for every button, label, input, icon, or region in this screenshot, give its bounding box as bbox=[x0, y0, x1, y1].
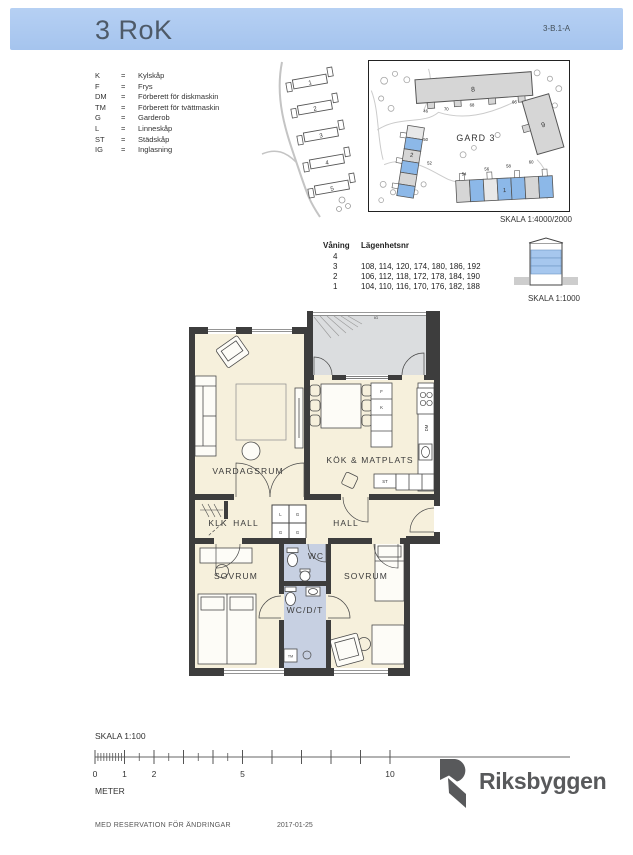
dining-table bbox=[321, 384, 361, 428]
floor-number: 1 bbox=[323, 282, 361, 292]
legend-eq: = bbox=[121, 82, 138, 93]
legend-row: DM=Förberett för diskmaskin bbox=[95, 92, 219, 103]
apartment-numbers: 108, 114, 120, 174, 180, 186, 192 bbox=[361, 262, 481, 272]
entrance-number: 70 bbox=[444, 106, 449, 111]
legend-abbr: G bbox=[95, 113, 121, 124]
legend-eq: = bbox=[121, 145, 138, 156]
building-row: 1 bbox=[284, 67, 334, 92]
tick-label: 1 bbox=[122, 769, 127, 779]
drawing-code: 3-B.1-A bbox=[543, 24, 570, 33]
legend-eq: = bbox=[121, 92, 138, 103]
fridge-label: K bbox=[380, 405, 383, 410]
legend-row: ST=Städskåp bbox=[95, 135, 219, 146]
header-band: 3 RoK 3-B.1-A bbox=[10, 8, 623, 50]
highlighted-floors bbox=[531, 250, 561, 274]
page-title: 3 RoK bbox=[95, 15, 173, 46]
legend-desc: Förberett för tvättmaskin bbox=[138, 103, 219, 114]
site-overview-map: 1 2 3 4 5 bbox=[262, 62, 362, 217]
building-row: 5 bbox=[306, 173, 356, 198]
disclaimer-text: MED RESERVATION FÖR ÄNDRINGAR bbox=[95, 822, 231, 829]
glazing-label: IG bbox=[374, 315, 378, 320]
legend-eq: = bbox=[121, 135, 138, 146]
entrance-number: 66 bbox=[512, 99, 517, 104]
legend-row: L=Linneskåp bbox=[95, 124, 219, 135]
apartment-table: Våning Lägenhetsnr 4 3108, 114, 120, 174… bbox=[323, 241, 481, 293]
washing-machine-label: TM bbox=[288, 655, 293, 659]
entrance-number: 58 bbox=[506, 164, 511, 169]
room-label-wc: WC bbox=[308, 551, 324, 561]
legend-abbr: DM bbox=[95, 92, 121, 103]
desk bbox=[372, 625, 404, 664]
building-row: 4 bbox=[301, 147, 351, 172]
dishwasher-label: DM bbox=[424, 424, 429, 431]
entrance-number: 56 bbox=[484, 167, 489, 172]
legend-desc: Kylskåp bbox=[138, 71, 164, 82]
bathroom-sink bbox=[306, 587, 320, 596]
table-row: 3108, 114, 120, 174, 180, 186, 192 bbox=[323, 262, 481, 272]
double-bed bbox=[198, 594, 256, 664]
legend-desc: Garderob bbox=[138, 113, 170, 124]
legend-abbr: TM bbox=[95, 103, 121, 114]
legend-abbr: IG bbox=[95, 145, 121, 156]
legend-row: G=Garderob bbox=[95, 113, 219, 124]
tick-label: 2 bbox=[152, 769, 157, 779]
tv-bench bbox=[295, 388, 303, 448]
cleaning-cabinet-label: ST bbox=[382, 479, 388, 484]
wc-toilet bbox=[287, 548, 298, 567]
floorplan-document-page: 3 RoK 3-B.1-A K=Kylskåp F=Frys DM=Förber… bbox=[0, 0, 633, 855]
roof bbox=[529, 238, 563, 243]
apartment-column-header: Lägenhetsnr bbox=[361, 241, 409, 252]
legend-row: IG=Inglasning bbox=[95, 145, 219, 156]
balcony-floor bbox=[311, 315, 428, 377]
courtyard-label: GARD 3 bbox=[456, 133, 495, 143]
building-row: 3 bbox=[295, 120, 345, 145]
legend-desc: Förberett för diskmaskin bbox=[138, 92, 218, 103]
sofa bbox=[195, 376, 216, 456]
ground bbox=[514, 277, 529, 285]
legend-desc: Frys bbox=[138, 82, 153, 93]
building-1: 1 bbox=[455, 169, 553, 203]
building-number: 8 bbox=[471, 86, 475, 93]
room-label-hall: HALL bbox=[233, 518, 259, 528]
legend-eq: = bbox=[121, 124, 138, 135]
legend-row: K=Kylskåp bbox=[95, 71, 219, 82]
legend-abbr: L bbox=[95, 124, 121, 135]
floor-plan: IG F K bbox=[178, 298, 468, 698]
legend-eq: = bbox=[121, 113, 138, 124]
legend-abbr: ST bbox=[95, 135, 121, 146]
legend-desc: Linneskåp bbox=[138, 124, 172, 135]
entrance-number: 52 bbox=[427, 161, 432, 166]
entrance-number: 50 bbox=[423, 137, 428, 142]
apartment-numbers: 106, 112, 118, 172, 178, 184, 190 bbox=[361, 272, 480, 282]
round-table bbox=[242, 442, 260, 460]
legend-row: TM=Förberett för tvättmaskin bbox=[95, 103, 219, 114]
floor-number: 3 bbox=[323, 262, 361, 272]
tick-label: 5 bbox=[240, 769, 245, 779]
legend-row: F=Frys bbox=[95, 82, 219, 93]
room-label-living: VARDAGSRUM bbox=[212, 466, 283, 476]
legend-desc: Städskåp bbox=[138, 135, 169, 146]
entrance-number: 68 bbox=[470, 102, 475, 107]
wardrobe-block bbox=[272, 505, 306, 541]
riksbyggen-logo-icon bbox=[437, 758, 475, 808]
legend-abbr: F bbox=[95, 82, 121, 93]
entrance-number: 60 bbox=[529, 160, 534, 165]
legend-desc: Inglasning bbox=[138, 145, 172, 156]
site-detail-map: 8 9 2 bbox=[368, 60, 570, 212]
room-label-bedroom: SOVRUM bbox=[344, 571, 388, 581]
building-row: 2 bbox=[289, 93, 339, 118]
building-section-icon bbox=[514, 234, 578, 292]
floor-column-header: Våning bbox=[323, 241, 361, 252]
site-map-scale-label: SKALA 1:4000/2000 bbox=[420, 215, 572, 224]
tick-label: 10 bbox=[385, 769, 395, 779]
tick-label: 0 bbox=[93, 769, 98, 779]
entrance-number: 54 bbox=[462, 171, 467, 176]
wc-sink bbox=[300, 569, 310, 581]
room-label-hall: HALL bbox=[333, 518, 359, 528]
ruler-unit-label: METER bbox=[95, 786, 125, 796]
room-label-bathroom: WC/D/T bbox=[287, 605, 324, 615]
trees bbox=[337, 197, 351, 212]
apartment-table-header: Våning Lägenhetsnr bbox=[323, 241, 481, 252]
plan-scale-label: SKALA 1:100 bbox=[95, 731, 146, 741]
document-date: 2017-01-25 bbox=[277, 822, 313, 829]
legend-abbr: K bbox=[95, 71, 121, 82]
road bbox=[262, 151, 296, 162]
room-label-bedroom: SOVRUM bbox=[214, 571, 258, 581]
freezer-label: F bbox=[380, 389, 383, 394]
room-label-kitchen: KÖK & MATPLATS bbox=[326, 455, 413, 465]
bathroom-toilet bbox=[285, 587, 296, 606]
table-row: 4 bbox=[323, 252, 481, 262]
legend: K=Kylskåp F=Frys DM=Förberett för diskma… bbox=[95, 71, 219, 156]
building-2: 2 bbox=[391, 124, 425, 198]
floor-number: 2 bbox=[323, 272, 361, 282]
room-label-closet: KLK bbox=[208, 518, 227, 528]
ground bbox=[563, 277, 578, 285]
table-row: 2106, 112, 118, 172, 178, 184, 190 bbox=[323, 272, 481, 282]
legend-eq: = bbox=[121, 71, 138, 82]
entrance-number: 46 bbox=[423, 108, 428, 113]
table-row: 1104, 110, 116, 170, 176, 182, 188 bbox=[323, 282, 481, 292]
legend-eq: = bbox=[121, 103, 138, 114]
building-number: 1 bbox=[503, 188, 507, 194]
apartment-numbers: 104, 110, 116, 170, 176, 182, 188 bbox=[361, 282, 480, 292]
section-scale-label: SKALA 1:1000 bbox=[495, 294, 580, 303]
brand-name: Riksbyggen bbox=[479, 768, 606, 795]
desk bbox=[200, 548, 252, 563]
floor-number: 4 bbox=[323, 252, 361, 262]
